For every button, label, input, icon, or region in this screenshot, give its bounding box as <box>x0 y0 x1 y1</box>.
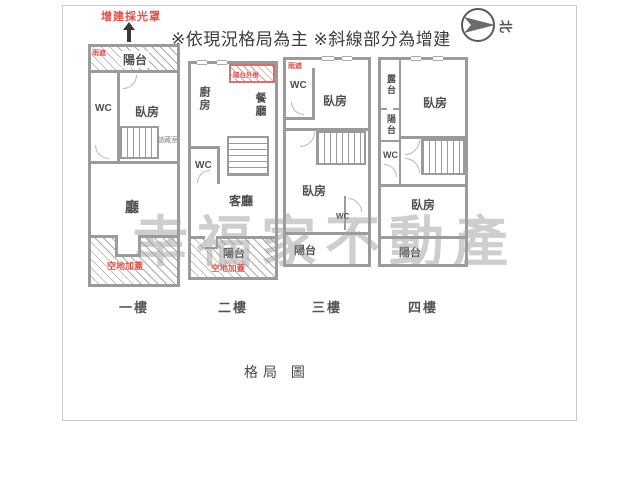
floor3-wc-bottom-label: WC <box>336 212 349 221</box>
arrow-shaft <box>127 29 131 42</box>
floor1-bedroom-label: 臥房 <box>135 103 159 120</box>
window-mark <box>411 56 421 61</box>
floor2-wc-wall-side <box>217 146 220 184</box>
floor4-name: 四樓 <box>378 297 468 316</box>
floor4-plan: 露台 陽台 WC 臥房 臥房 陽台 <box>378 57 468 267</box>
floor4-bedroom-top-label: 臥房 <box>423 94 447 111</box>
floor1-hall-wall <box>91 161 177 164</box>
floor4-bedroom-bottom-label: 臥房 <box>411 196 435 213</box>
window-mark <box>217 60 227 65</box>
up-arrow-icon <box>122 22 136 42</box>
door-swing-icon <box>405 140 420 155</box>
floor4-wc-wall-top <box>381 140 399 142</box>
floor1-storage-label: 儲藏室 <box>157 135 178 145</box>
door-swing-icon <box>197 170 210 183</box>
floor2-name: 二樓 <box>188 297 278 316</box>
window-mark <box>433 56 443 61</box>
door-swing-icon <box>291 102 304 115</box>
floor2-kitchen-label: 廚房 <box>196 86 212 112</box>
window-mark <box>197 60 207 65</box>
floor4-stairs <box>421 139 465 175</box>
floor4-terrace-label: 露台 <box>385 74 398 96</box>
compass-icon: 北 <box>456 2 516 48</box>
floor1-addition-notch <box>115 235 141 257</box>
floorplan-canvas: 增建採光罩 ※依現況格局為主 ※斜線部分為增建 北 雨遮 陽台 WC 臥房 儲藏… <box>0 0 640 480</box>
floor2-plan: 陽台外推 廚房 餐廳 WC 客廳 陽台 空地加蓋 <box>188 61 278 280</box>
floor3-wc-wall-bottom <box>286 117 315 120</box>
floor3-wc-top-label: WC <box>290 80 307 91</box>
door-swing-icon <box>405 158 420 173</box>
floor1-stairs <box>119 126 159 159</box>
floor4-wc-label: WC <box>383 150 398 160</box>
floor2-wc-label: WC <box>195 160 212 171</box>
door-swing-icon <box>123 75 137 89</box>
floor2-stairs <box>227 136 269 176</box>
north-label: 北 <box>497 20 516 33</box>
floor2-balcony-label: 陽台 <box>221 245 247 261</box>
floor1-addition-label: 空地加蓋 <box>107 259 143 272</box>
floor3-bedroom-bottom-label: 臥房 <box>302 182 326 199</box>
floor1-name: 一樓 <box>88 297 180 316</box>
floor4-left-wall <box>399 60 401 186</box>
floor3-name: 三樓 <box>283 297 371 316</box>
floor3-balcony-label: 陽台 <box>294 242 316 258</box>
compass-circle <box>456 2 502 48</box>
floor2-wc-wall-top <box>191 146 217 149</box>
window-mark <box>322 56 334 61</box>
floor3-stairs <box>316 131 366 165</box>
floor2-balcony-notch <box>205 236 218 249</box>
floor3-canopy-label: 雨遮 <box>288 61 302 71</box>
floor4-balcony-label: 陽台 <box>399 244 421 260</box>
floor4-balcony-side-label: 陽台 <box>385 114 398 136</box>
floor4-terrace-divider <box>381 108 399 110</box>
floor3-plan: 雨遮 WC 臥房 臥房 WC 陽台 <box>283 57 371 267</box>
floor4-balcony-wall <box>381 236 465 239</box>
floor3-balcony-wall <box>286 232 368 235</box>
floor2-dining-label: 餐廳 <box>252 92 268 118</box>
floor1-plan: 雨遮 陽台 WC 臥房 儲藏室 廳 空地加蓋 <box>88 44 180 287</box>
floor4-lower-wall <box>381 184 465 187</box>
door-swing-icon <box>300 132 315 147</box>
floor3-bedroom-top-label: 臥房 <box>323 92 347 109</box>
floor1-wc-label: WC <box>95 103 112 114</box>
floor2-living-label: 客廳 <box>229 192 253 209</box>
window-mark <box>342 56 352 61</box>
door-swing-icon <box>95 145 109 159</box>
floor1-hall-label: 廳 <box>125 197 139 217</box>
door-swing-icon <box>348 198 362 212</box>
floor2-pushout-label: 陽台外推 <box>233 69 259 79</box>
floor3-wc-wall-side <box>312 68 315 120</box>
floor1-balcony-label: 陽台 <box>121 51 149 68</box>
floor1-canopy-label: 雨遮 <box>92 48 106 58</box>
disclaimer-text: ※依現況格局為主 ※斜線部分為增建 <box>171 25 451 50</box>
diagram-caption: 格局 圖 <box>244 362 310 382</box>
door-swing-icon <box>384 164 397 177</box>
floor2-addition-label: 空地加蓋 <box>211 262 245 274</box>
